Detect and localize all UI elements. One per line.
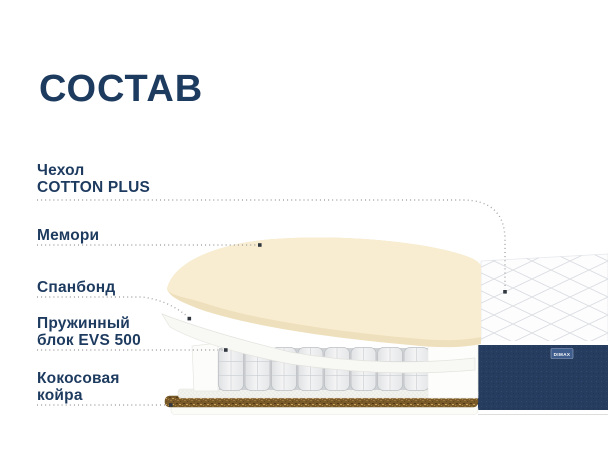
quilted-cover-top <box>481 254 608 344</box>
brand-logo-text: DIMAX <box>554 352 571 357</box>
label-spring-block-line1: Пружинный <box>37 315 141 332</box>
label-coir: Кокосовая койра <box>37 370 120 404</box>
page-title: СОСТАВ <box>39 68 203 111</box>
leader-endpoint <box>503 290 507 294</box>
spring-pocket <box>298 348 323 391</box>
label-memory: Мемори <box>37 227 99 244</box>
label-coir-line1: Кокосовая <box>37 370 120 387</box>
leader-endpoint <box>188 317 192 321</box>
label-cover-line1: Чехол <box>37 162 150 179</box>
leader-endpoints <box>169 243 507 407</box>
label-cover-line2: COTTON PLUS <box>37 179 150 196</box>
spring-block <box>192 343 478 398</box>
label-spring-block: Пружинный блок EVS 500 <box>37 315 141 349</box>
felt-layer <box>178 389 478 398</box>
spring-pocket <box>351 348 376 391</box>
side-band: DIMAX <box>478 341 608 415</box>
label-spunbond-line1: Спанбонд <box>37 279 115 296</box>
leader-endpoint <box>258 243 262 247</box>
spring-pocket <box>378 348 403 391</box>
spring-pocket <box>272 348 297 391</box>
piping-bottom <box>478 410 608 415</box>
spring-pocket <box>219 348 244 391</box>
brand-logo: DIMAX <box>551 349 573 359</box>
leader-line-cover <box>37 200 505 289</box>
leader-endpoint <box>224 348 228 352</box>
coconut-coir-layer <box>165 396 478 407</box>
label-spunbond: Спанбонд <box>37 279 115 296</box>
label-cover: Чехол COTTON PLUS <box>37 162 150 196</box>
leader-line-spunbond <box>37 297 188 317</box>
piping-top <box>478 341 608 345</box>
label-memory-line1: Мемори <box>37 227 99 244</box>
label-spring-block-line2: блок EVS 500 <box>37 332 141 349</box>
label-coir-line2: койра <box>37 387 120 404</box>
spunbond-layer <box>162 314 475 373</box>
memory-foam-layer <box>167 238 481 348</box>
spring-pocket <box>325 348 350 391</box>
cut-edge-right <box>428 344 478 398</box>
cut-edge-left <box>192 343 218 391</box>
base-layer <box>171 405 478 415</box>
spring-pocket <box>404 348 429 391</box>
spring-pocket <box>245 348 270 391</box>
leader-endpoint <box>169 403 173 407</box>
mattress-composition-infographic: СОСТАВ Чехол COTTON PLUS Мемори Спанбонд… <box>0 0 608 456</box>
